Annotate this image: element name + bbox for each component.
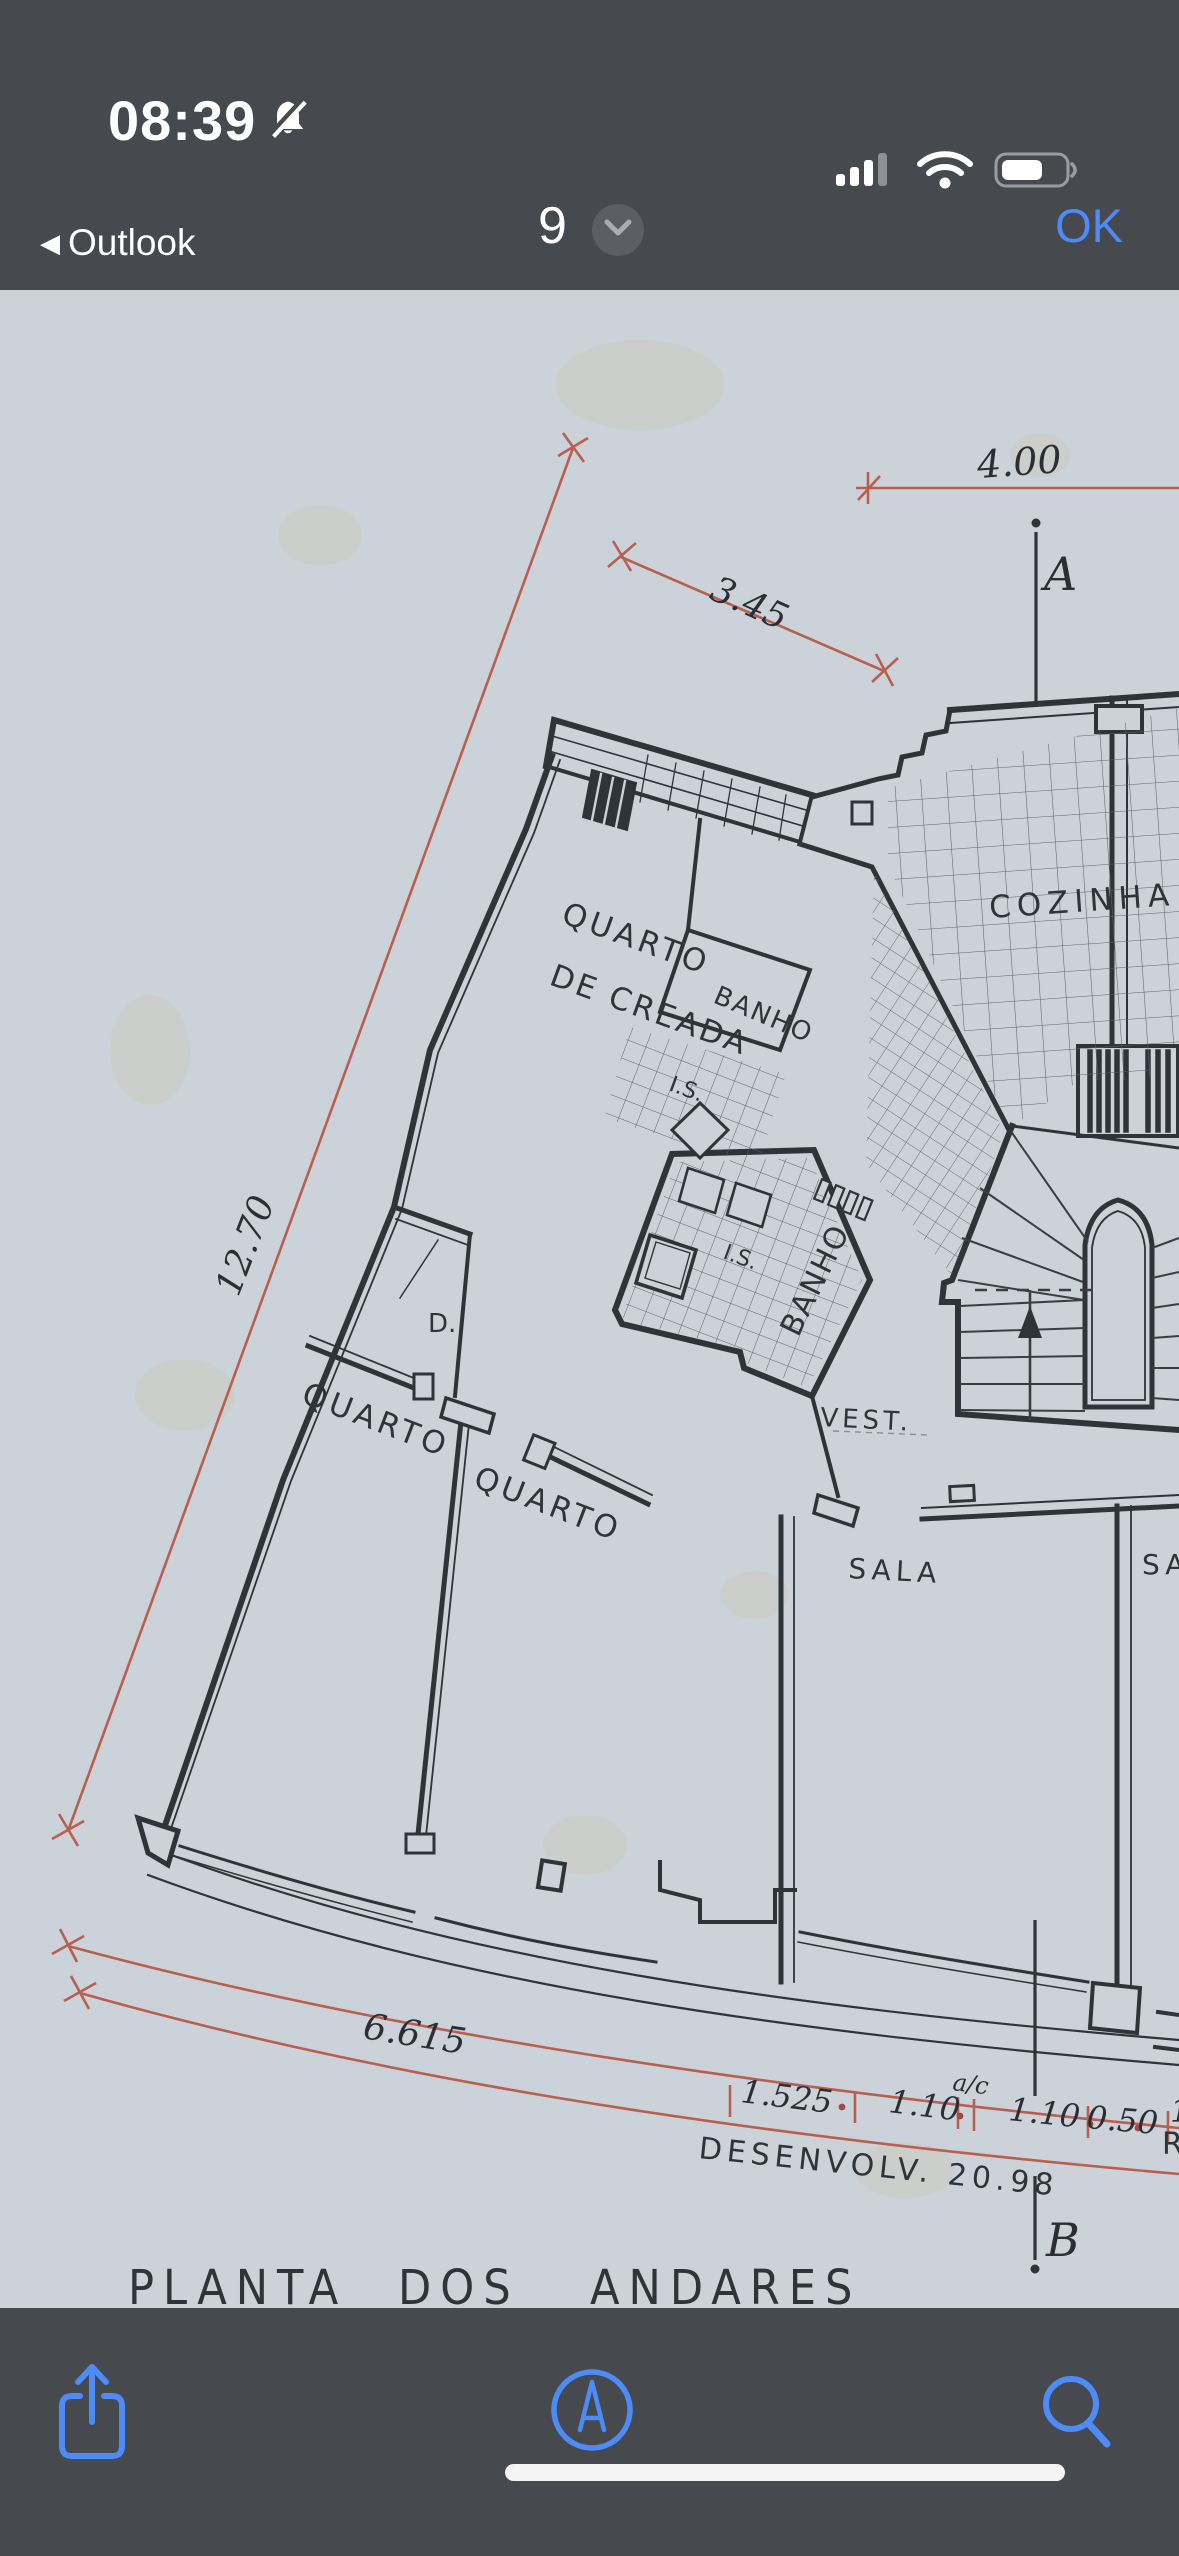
back-app-label: Outlook — [68, 222, 196, 264]
section-letter: B — [1045, 2213, 1080, 2267]
markup-compass-icon — [548, 2441, 636, 2458]
room-label: SA — [1142, 1548, 1179, 1581]
cellular-signal-icon — [834, 148, 896, 197]
paper-background — [0, 290, 1179, 2310]
share-button[interactable] — [56, 2360, 128, 2467]
page-dropdown-button[interactable] — [592, 204, 644, 256]
title-word: PLANTA — [128, 2260, 347, 2310]
wifi-icon — [916, 148, 974, 197]
bell-slash-icon — [266, 96, 310, 145]
partial-letter: R — [1162, 2127, 1179, 2162]
room-label: SALA — [848, 1552, 942, 1590]
search-icon — [1035, 2441, 1119, 2458]
dimension-value: 4.00 — [975, 437, 1063, 487]
chevron-down-icon — [603, 218, 633, 243]
ok-button[interactable]: OK — [1055, 198, 1123, 253]
dimension-value: 0.50 — [1085, 2098, 1159, 2142]
room-label: D. — [428, 1309, 456, 1339]
drawing-title: PLANTA DOS ANDARES — [128, 2260, 861, 2310]
back-chevron-icon: ◀ — [40, 230, 60, 256]
dimension-value: 1.10 — [1007, 2090, 1082, 2135]
clock: 08:39 — [108, 88, 256, 153]
status-right — [834, 148, 1084, 197]
battery-icon — [994, 148, 1084, 197]
status-left: 08:39 — [108, 88, 310, 153]
iphone-screen: 08:39 ◀ Outlook — [0, 0, 1179, 2556]
search-button[interactable] — [1035, 2370, 1119, 2459]
page-indicator: 9 — [538, 196, 567, 256]
share-icon — [56, 2449, 128, 2466]
room-label: VEST. — [820, 1403, 913, 1438]
header-bar: 08:39 ◀ Outlook — [0, 0, 1179, 290]
section-letter: A — [1040, 547, 1077, 601]
document-viewer[interactable]: QUARTO DE CREADA BANHO I.S. I.S. BANHO C… — [0, 290, 1179, 2310]
dimension-annotation: a/c — [951, 2068, 990, 2100]
floor-plan-drawing: QUARTO DE CREADA BANHO I.S. I.S. BANHO C… — [0, 290, 1179, 2310]
back-link[interactable]: ◀ Outlook — [40, 222, 196, 264]
home-indicator[interactable] — [505, 2464, 1065, 2481]
markup-button[interactable] — [548, 2366, 636, 2459]
title-word: DOS — [398, 2260, 520, 2310]
title-word: ANDARES — [590, 2260, 861, 2310]
dimension-value-partial: 1 — [1170, 2092, 1179, 2130]
bottom-toolbar — [0, 2308, 1179, 2556]
